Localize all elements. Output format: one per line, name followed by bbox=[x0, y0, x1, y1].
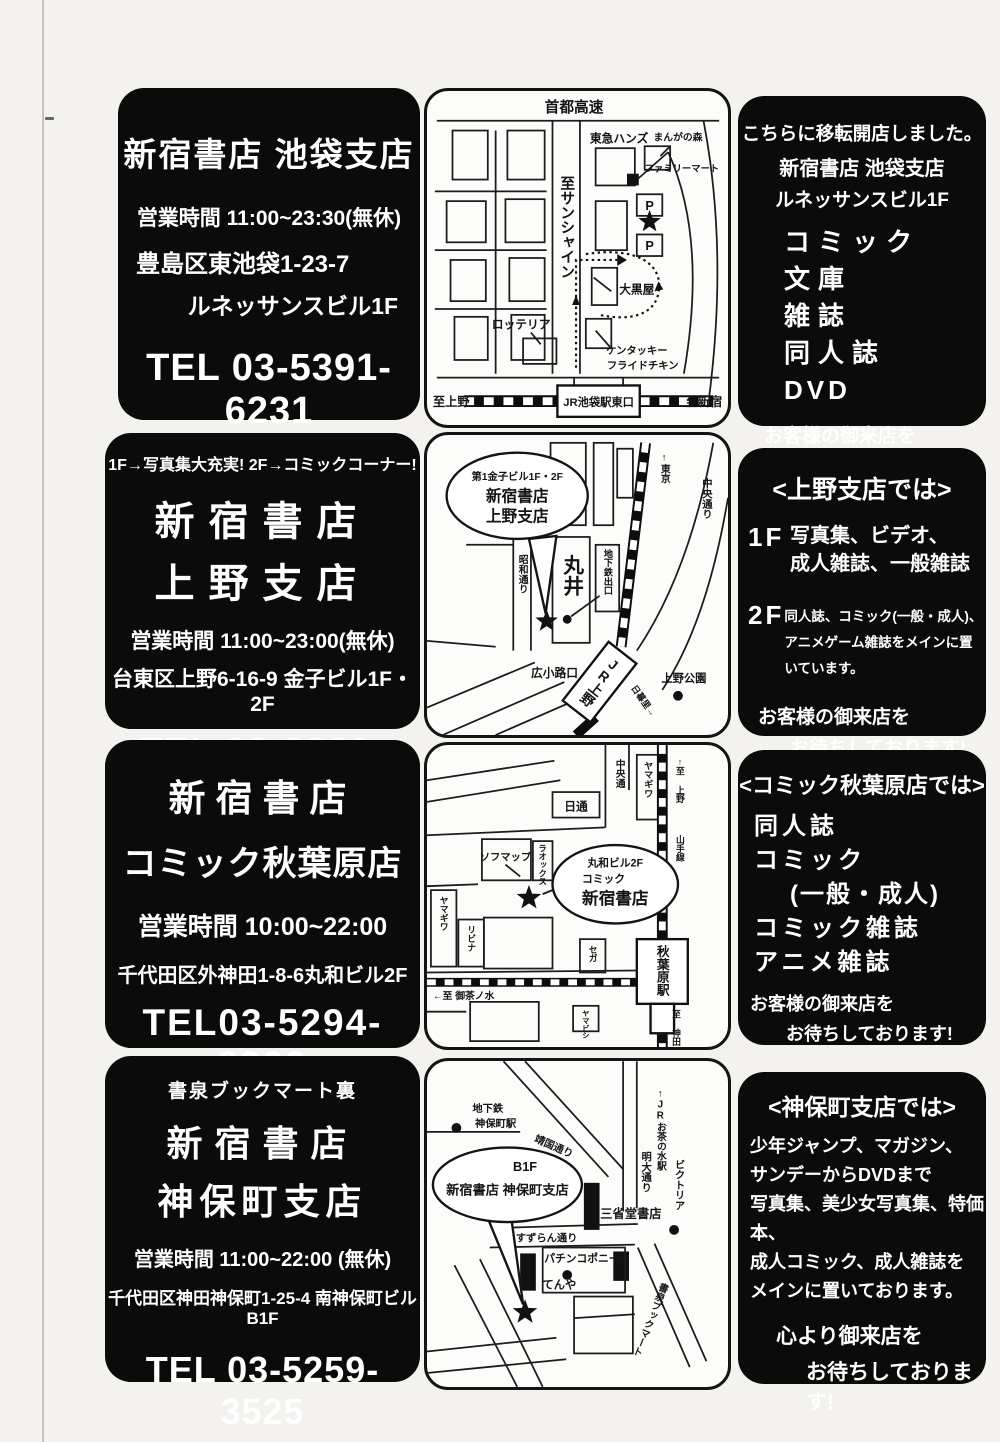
store-panel-ikebukuro: 新宿書店 池袋支店 営業時間 11:00~23:30(無休) 豊島区東池袋1-2… bbox=[118, 88, 420, 420]
info-building: ルネッサンスビル1F bbox=[738, 185, 986, 212]
scan-artifact-line bbox=[42, 0, 44, 1442]
map-label: パチンコポニー bbox=[544, 1252, 619, 1265]
map-label: 上野公園 bbox=[661, 671, 706, 685]
map-ikebukuro-canvas: 首都高速 東急ハンズ まんがの森 ファミリーマート 至サンシャイン P P 大黒… bbox=[427, 91, 728, 425]
info-line: 写真集、美少女写真集、特価本、 bbox=[750, 1190, 986, 1248]
sale-item: 雑誌 bbox=[784, 298, 986, 335]
station-box: JR上野 bbox=[563, 642, 637, 722]
store-address: 千代田区神田神保町1-25-4 南神保町ビルB1F bbox=[105, 1284, 420, 1329]
info-moved: こちらに移転開店しました。 bbox=[738, 120, 986, 146]
balloon-text: 新宿書店 bbox=[582, 888, 649, 908]
location-dot bbox=[563, 615, 572, 624]
map-label: ファミリーマート bbox=[645, 164, 719, 174]
scanned-ad-page: 新宿書店 池袋支店 営業時間 11:00~23:30(無休) 豊島区東池袋1-2… bbox=[0, 0, 1000, 1442]
info-header: <上野支店では> bbox=[738, 470, 986, 506]
store-title: 上野支店 bbox=[105, 551, 420, 609]
store-address: 台東区上野6-16-9 金子ビル1F・2F bbox=[105, 663, 420, 717]
balloon-tail bbox=[488, 1218, 523, 1304]
store-title: 新宿書店 池袋支店 bbox=[118, 128, 420, 176]
star-marker-icon bbox=[535, 610, 557, 631]
location-dot bbox=[562, 1270, 572, 1280]
map-label: 東急ハンズ bbox=[589, 131, 649, 145]
info-panel-akihabara: <コミック秋葉原店では> 同人誌 コミック (一般・成人) コミック雑誌 アニメ… bbox=[738, 750, 986, 1045]
closing-line: お待ちしております! bbox=[786, 1020, 986, 1046]
store-hours: 営業時間 11:00~23:30(無休) bbox=[118, 202, 420, 232]
sale-item: コミック雑誌 bbox=[754, 912, 986, 946]
map-label: 神保町駅 bbox=[475, 1117, 517, 1130]
balloon-text: B1F bbox=[513, 1159, 537, 1174]
info-panel-ueno: <上野支店では> 1F 写真集、ビデオ、 成人雑誌、一般雑誌 2F 同人誌、コミ… bbox=[738, 448, 986, 736]
map-label: 日暮里→ bbox=[629, 683, 658, 718]
closing-line: お客様の御来店を bbox=[764, 421, 986, 448]
pointer-line bbox=[543, 890, 553, 894]
sale-item: 同人誌 bbox=[754, 810, 986, 844]
store-title: 新宿書店 bbox=[105, 1115, 420, 1167]
floor-line: 同人誌、コミック(一般・成人)、 bbox=[784, 604, 986, 630]
store-panel-ueno: 1F→写真集大充実! 2F→コミックコーナー! 新宿書店 上野支店 営業時間 1… bbox=[105, 433, 420, 729]
map-label: 至 神田↓ bbox=[671, 1009, 681, 1047]
sale-item: 文庫 bbox=[784, 261, 986, 298]
store-banner: 書泉ブックマート裏 bbox=[105, 1076, 420, 1103]
map-label: 大黒屋 bbox=[619, 282, 654, 296]
map-label: 広小路口 bbox=[531, 666, 578, 680]
map-label: 地下鉄出口 bbox=[602, 548, 613, 596]
info-header: <コミック秋葉原店では> bbox=[738, 768, 986, 800]
info-panel-ikebukuro: こちらに移転開店しました。 新宿書店 池袋支店 ルネッサンスビル1F コミック … bbox=[738, 96, 986, 426]
map-akihabara-canvas: 秋葉原駅 中央通 日通 ヤマギワ ↑至 上野 山手線 ソフマップ ラオックス 丸… bbox=[427, 745, 728, 1047]
balloon-text: 上野支店 bbox=[486, 506, 549, 525]
balloon-text: 新宿書店 神保町支店 bbox=[446, 1182, 569, 1198]
map-label: 丸井 bbox=[560, 555, 585, 597]
store-panel-akihabara: 新宿書店 コミック秋葉原店 営業時間 10:00~22:00 千代田区外神田1-… bbox=[105, 740, 420, 1048]
pointer-line bbox=[505, 865, 520, 877]
sale-item: DVD bbox=[784, 372, 986, 409]
map-label: ↑東京 bbox=[659, 453, 671, 484]
store-panel-jimbocho: 書泉ブックマート裏 新宿書店 神保町支店 営業時間 11:00~22:00 (無… bbox=[105, 1056, 420, 1382]
closing-line: お客様の御来店を bbox=[758, 702, 986, 729]
info-line: メインに置いております。 bbox=[750, 1277, 986, 1306]
sale-item: コミック bbox=[754, 844, 986, 878]
map-label: 中央通り bbox=[700, 477, 712, 519]
map-label: すずらん通り bbox=[516, 1232, 578, 1245]
star-marker-icon bbox=[638, 210, 660, 231]
map-label: P bbox=[645, 238, 654, 253]
closing-line: お待ちしております! bbox=[806, 1356, 986, 1416]
map-ueno: JR上野 日暮里→ 第1金子ビル1F・2F 新宿書店 上野支店 昭和通り 丸井 … bbox=[424, 432, 731, 738]
store-title: コミック秋葉原店 bbox=[105, 836, 420, 885]
star-marker-icon bbox=[513, 1299, 538, 1322]
map-label: 書泉ブックマート bbox=[630, 1279, 672, 1358]
map-label: ヤマビシ bbox=[581, 1010, 590, 1040]
map-label: ↑至 上野 bbox=[675, 757, 685, 804]
map-label: 至上野 bbox=[433, 394, 470, 409]
info-line: 少年ジャンプ、マガジン、 bbox=[750, 1132, 986, 1161]
closing-line: 心より御来店を bbox=[776, 1320, 986, 1350]
station-label: 秋葉原駅 bbox=[655, 944, 670, 997]
store-banner: 1F→写真集大充実! 2F→コミックコーナー! bbox=[105, 451, 420, 475]
store-hours: 営業時間 11:00~23:00(無休) bbox=[105, 625, 420, 655]
map-akihabara: 秋葉原駅 中央通 日通 ヤマギワ ↑至 上野 山手線 ソフマップ ラオックス 丸… bbox=[424, 742, 731, 1050]
map-label: ヤマギワ bbox=[439, 896, 449, 932]
closing-line: お客様の御来店を bbox=[750, 990, 986, 1016]
floor-label: 2F bbox=[748, 600, 784, 682]
store-hours: 営業時間 10:00~22:00 bbox=[105, 907, 420, 943]
location-dot bbox=[669, 1225, 679, 1235]
map-label: ←至 御茶ノ水 bbox=[433, 989, 495, 1002]
map-jimbocho: 地下鉄 神保町駅 靖国通り ↑JRお茶の水駅 明大通り ビクトリア B1F 新宿… bbox=[424, 1058, 731, 1390]
map-label: リビナ bbox=[466, 925, 476, 952]
map-label: セガ bbox=[588, 945, 598, 964]
info-store: 新宿書店 池袋支店 bbox=[738, 152, 986, 181]
info-line: 成人コミック、成人雑誌を bbox=[750, 1248, 986, 1277]
map-label: 至サンシャイン bbox=[558, 176, 574, 279]
info-panel-jimbocho: <神保町支店では> 少年ジャンプ、マガジン、 サンデーからDVDまで 写真集、美… bbox=[738, 1072, 986, 1384]
station-label: JR池袋駅東口 bbox=[563, 395, 634, 409]
store-address: 千代田区外神田1-8-6丸和ビル2F bbox=[105, 959, 420, 988]
map-label: 中央通 bbox=[614, 757, 626, 789]
sale-item: 同人誌 bbox=[784, 335, 986, 372]
store-title: 新宿書店 bbox=[105, 489, 420, 547]
balloon-text: 丸和ビル2F bbox=[586, 857, 643, 870]
location-dot bbox=[452, 1123, 462, 1133]
info-line: サンデーからDVDまで bbox=[750, 1161, 986, 1190]
route-arrow-icon bbox=[572, 295, 580, 305]
map-label: 至新宿 bbox=[685, 394, 722, 409]
map-label: 明大通り bbox=[639, 1151, 651, 1192]
map-label: 昭和通り bbox=[517, 554, 529, 594]
store-hours: 営業時間 11:00~22:00 (無休) bbox=[105, 1243, 420, 1272]
map-label: フライドチキン bbox=[607, 360, 679, 372]
store-title: 新宿書店 bbox=[105, 768, 420, 822]
sale-item: アニメ雑誌 bbox=[754, 946, 986, 980]
map-ikebukuro: 首都高速 東急ハンズ まんがの森 ファミリーマート 至サンシャイン P P 大黒… bbox=[424, 88, 731, 428]
star-marker-icon bbox=[517, 885, 542, 908]
map-label: ケンタッキー bbox=[606, 345, 667, 357]
floor-label: 1F bbox=[748, 522, 790, 578]
map-label: 地下鉄 bbox=[472, 1102, 504, 1115]
location-dot bbox=[673, 691, 683, 701]
map-label: 首都高速 bbox=[545, 98, 604, 116]
store-building: ルネッサンスビル1F bbox=[118, 287, 398, 321]
map-label: てんや bbox=[542, 1279, 576, 1292]
floor-line: 写真集、ビデオ、 bbox=[790, 522, 970, 550]
balloon-text: 第1金子ビル1F・2F bbox=[472, 470, 563, 483]
route-arrow-icon bbox=[654, 282, 663, 292]
map-label: P bbox=[645, 198, 654, 213]
store-tel: TEL 03-5259-3525 bbox=[105, 1349, 420, 1433]
map-label: まんがの森 bbox=[654, 130, 703, 143]
floor-line: 成人雑誌、一般雑誌 bbox=[790, 550, 970, 578]
map-label: ↑JRお茶の水駅 bbox=[655, 1089, 668, 1172]
store-address: 豊島区東池袋1-23-7 bbox=[136, 244, 420, 279]
map-label: ビクトリア bbox=[672, 1158, 684, 1210]
floor-line: アニメゲーム雑誌をメインに置いています。 bbox=[784, 630, 986, 682]
map-label: ヤマギワ bbox=[643, 761, 654, 798]
map-label: 山手線 bbox=[675, 834, 685, 863]
balloon-text: コミック bbox=[582, 873, 625, 885]
scan-artifact-mark bbox=[45, 117, 54, 120]
map-jimbocho-canvas: 地下鉄 神保町駅 靖国通り ↑JRお茶の水駅 明大通り ビクトリア B1F 新宿… bbox=[427, 1061, 728, 1387]
store-tel: TEL 03-5391-6231 bbox=[118, 347, 420, 433]
balloon-text: 新宿書店 bbox=[486, 487, 549, 506]
map-ueno-canvas: JR上野 日暮里→ 第1金子ビル1F・2F 新宿書店 上野支店 昭和通り 丸井 … bbox=[427, 435, 728, 735]
sale-item: コミック bbox=[784, 224, 986, 261]
map-label: ロッテリア bbox=[492, 319, 551, 332]
map-label: 三省堂書店 bbox=[600, 1206, 661, 1221]
store-title: 神保町支店 bbox=[105, 1173, 420, 1225]
info-header: <神保町支店では> bbox=[738, 1088, 986, 1122]
sale-item: (一般・成人) bbox=[790, 878, 986, 912]
map-label: ソフマップ bbox=[480, 851, 532, 864]
map-label: ラオックス bbox=[538, 844, 548, 886]
route-arrow-icon bbox=[617, 254, 627, 266]
map-label: 日通 bbox=[564, 800, 588, 814]
